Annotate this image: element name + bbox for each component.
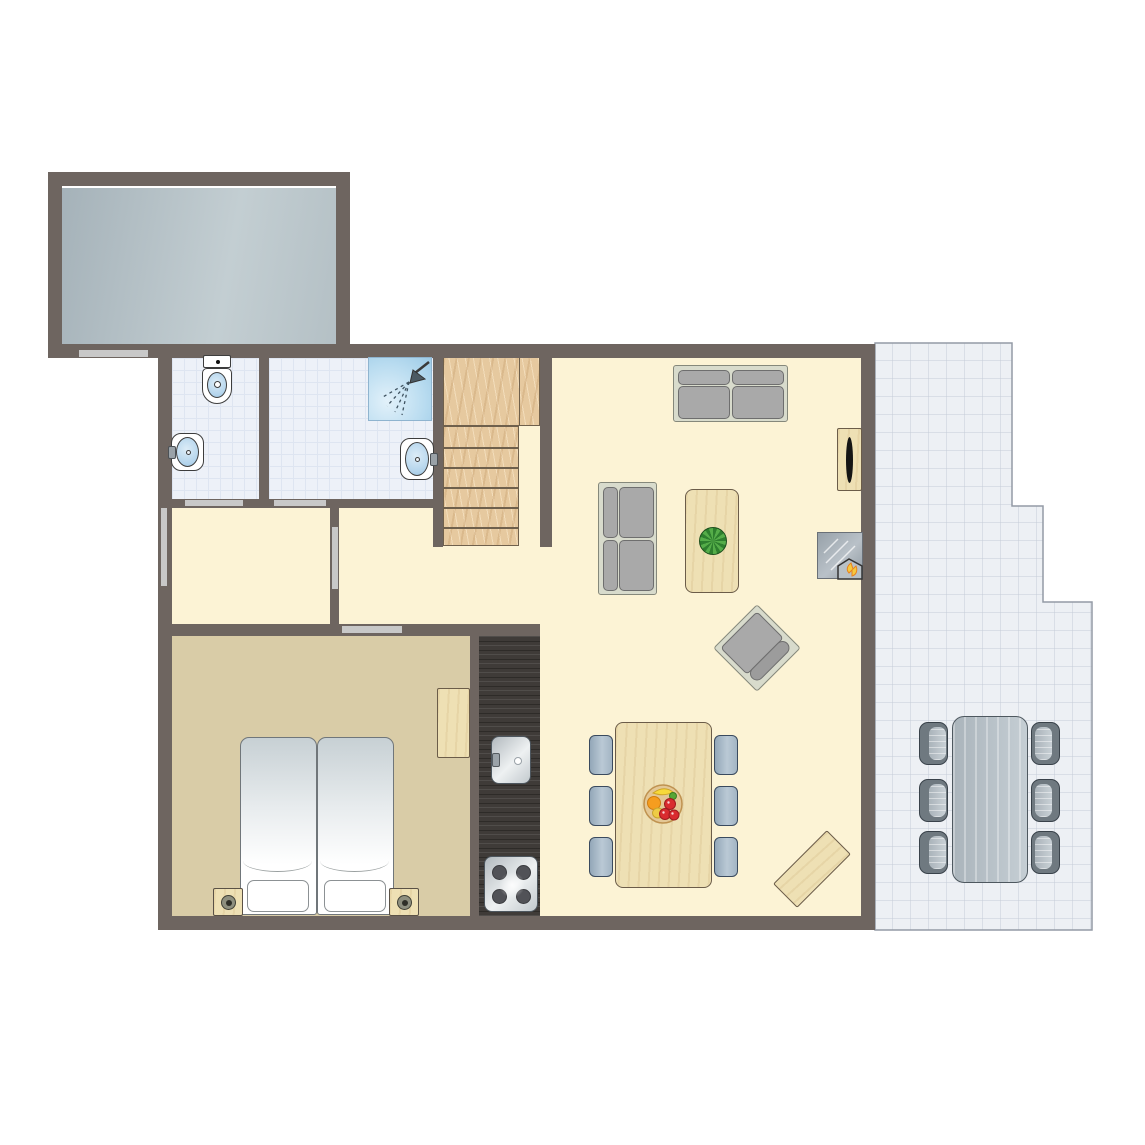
lamp-icon-center [402, 900, 408, 906]
fireplace-icon [818, 533, 864, 580]
dining-chair-4 [714, 735, 738, 775]
stair-tread-line [444, 447, 518, 449]
tv-icon [846, 437, 853, 483]
door-opening-5 [332, 527, 338, 589]
patio-chair-seat [929, 727, 946, 760]
fireplace [817, 532, 863, 579]
storage-room-floor [62, 188, 336, 344]
wall-3 [336, 172, 350, 358]
stairs-landing-seam [519, 355, 520, 425]
stair-tread-line [444, 487, 518, 489]
kitchen-sink [491, 736, 531, 784]
wall-14 [540, 344, 552, 547]
drain-icon [514, 757, 522, 765]
stair-tread-line [444, 507, 518, 509]
wall-2 [48, 172, 62, 358]
sofa-seat-cushion [678, 386, 730, 419]
patio-chair-seat [929, 836, 946, 869]
dining-chair-6 [714, 837, 738, 877]
sofa-small [598, 482, 657, 595]
faucet-icon [430, 453, 438, 466]
stove [484, 856, 538, 912]
patio-chair-seat [1035, 836, 1052, 869]
door-opening-2 [185, 500, 243, 506]
toilet-cistern [203, 355, 231, 368]
wc-sink [171, 433, 204, 471]
pillow [324, 880, 386, 912]
patio-chair-1 [919, 722, 948, 765]
stairs-landing [443, 354, 540, 426]
pillow [247, 880, 309, 912]
wall-1 [48, 172, 350, 186]
wall-7 [158, 916, 875, 930]
patio-chair-4 [1031, 722, 1060, 765]
bed-left [240, 737, 317, 915]
sink-drain [415, 457, 420, 462]
floor-plan [0, 0, 1145, 1145]
shower-sink [400, 438, 434, 480]
bed-right [317, 737, 394, 915]
duvet-fold [243, 850, 312, 872]
sink-drain [186, 450, 191, 455]
dining-chair-5 [714, 786, 738, 826]
shower-head-icon [369, 358, 433, 422]
faucet-icon [168, 446, 176, 459]
sofa-back-cushion [678, 370, 730, 385]
sofa-seat-cushion [619, 540, 654, 591]
patio-chair-5 [1031, 779, 1060, 822]
cistern-button [216, 360, 220, 364]
patio-table [952, 716, 1028, 883]
fruit-bowl-icon [643, 784, 683, 824]
wall-5 [158, 344, 172, 930]
dining-table [615, 722, 712, 888]
dining-chair-1 [589, 735, 613, 775]
toilet-drain [214, 381, 221, 388]
sofa-large [673, 365, 788, 422]
patio-chair-6 [1031, 831, 1060, 874]
wall-13 [470, 636, 479, 916]
shower [368, 357, 432, 421]
wall-4 [48, 344, 875, 358]
sofa-seat-cushion [619, 487, 654, 538]
coffee-table [685, 489, 739, 593]
stove-glare [498, 871, 526, 899]
stair-tread-line [444, 527, 518, 529]
door-opening-3 [274, 500, 326, 506]
plant-icon [699, 527, 727, 555]
patio-chair-3 [919, 831, 948, 874]
door-opening-6 [342, 626, 402, 633]
wardrobe [437, 688, 470, 758]
tv-cabinet [837, 428, 862, 491]
sofa-back-cushion [732, 370, 784, 385]
patio-chair-2 [919, 779, 948, 822]
sofa-back-cushion [603, 540, 618, 591]
dining-chair-3 [589, 837, 613, 877]
door-opening-1 [79, 350, 148, 357]
wall-6 [861, 344, 875, 930]
faucet-icon [492, 753, 500, 767]
sofa-seat-cushion [732, 386, 784, 419]
patio-chair-seat [929, 784, 946, 817]
patio-chair-seat [1035, 727, 1052, 760]
toilet-bowl [202, 368, 232, 404]
door-opening-4 [161, 508, 167, 586]
dining-chair-2 [589, 786, 613, 826]
stair-tread-line [444, 467, 518, 469]
nightstand-left [213, 888, 243, 916]
patio-chair-seat [1035, 784, 1052, 817]
nightstand-right [389, 888, 419, 916]
sofa-back-cushion [603, 487, 618, 538]
lamp-icon-center [226, 900, 232, 906]
wall-8 [259, 358, 269, 499]
toilet [202, 355, 232, 404]
stairs-steps [443, 426, 519, 546]
duvet-fold [320, 850, 389, 872]
